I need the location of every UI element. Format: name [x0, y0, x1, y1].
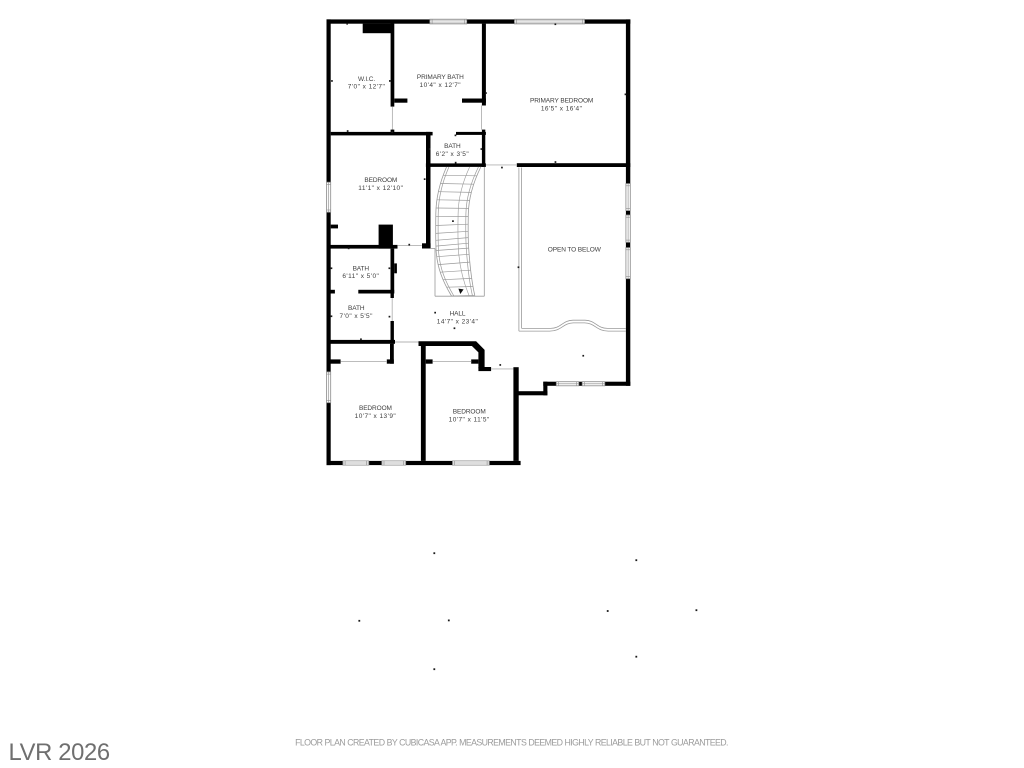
svg-text:W.I.C.: W.I.C.	[358, 76, 375, 83]
svg-text:16'5" x 16'4": 16'5" x 16'4"	[541, 105, 583, 112]
svg-text:OPEN TO BELOW: OPEN TO BELOW	[548, 247, 602, 254]
svg-text:6'11" x 5'0": 6'11" x 5'0"	[342, 273, 379, 280]
svg-text:PRIMARY BATH: PRIMARY BATH	[417, 74, 464, 81]
svg-text:BEDROOM: BEDROOM	[453, 409, 486, 416]
svg-text:BATH: BATH	[353, 265, 370, 272]
svg-text:BATH: BATH	[348, 305, 365, 312]
svg-text:10'4" x 12'7": 10'4" x 12'7"	[420, 82, 462, 89]
svg-text:HALL: HALL	[450, 311, 466, 318]
svg-text:BEDROOM: BEDROOM	[359, 405, 392, 412]
svg-text:BATH: BATH	[444, 143, 461, 150]
svg-text:6'2" x 3'5": 6'2" x 3'5"	[436, 151, 470, 158]
svg-text:7'0" x 5'5": 7'0" x 5'5"	[340, 313, 374, 320]
svg-text:7'0" x 12'7": 7'0" x 12'7"	[348, 84, 386, 91]
svg-text:14'7" x 23'4": 14'7" x 23'4"	[437, 319, 479, 326]
svg-text:PRIMARY BEDROOM: PRIMARY BEDROOM	[530, 98, 593, 105]
svg-text:LVR 2026: LVR 2026	[9, 739, 110, 766]
svg-text:10'7" x 13'9": 10'7" x 13'9"	[355, 413, 397, 420]
svg-text:FLOOR PLAN CREATED BY CUBICASA: FLOOR PLAN CREATED BY CUBICASA APP. MEAS…	[295, 738, 728, 748]
svg-text:11'1" x 12'10": 11'1" x 12'10"	[358, 185, 403, 192]
svg-text:10'7" x 11'5": 10'7" x 11'5"	[449, 416, 490, 423]
svg-text:BEDROOM: BEDROOM	[364, 177, 397, 184]
